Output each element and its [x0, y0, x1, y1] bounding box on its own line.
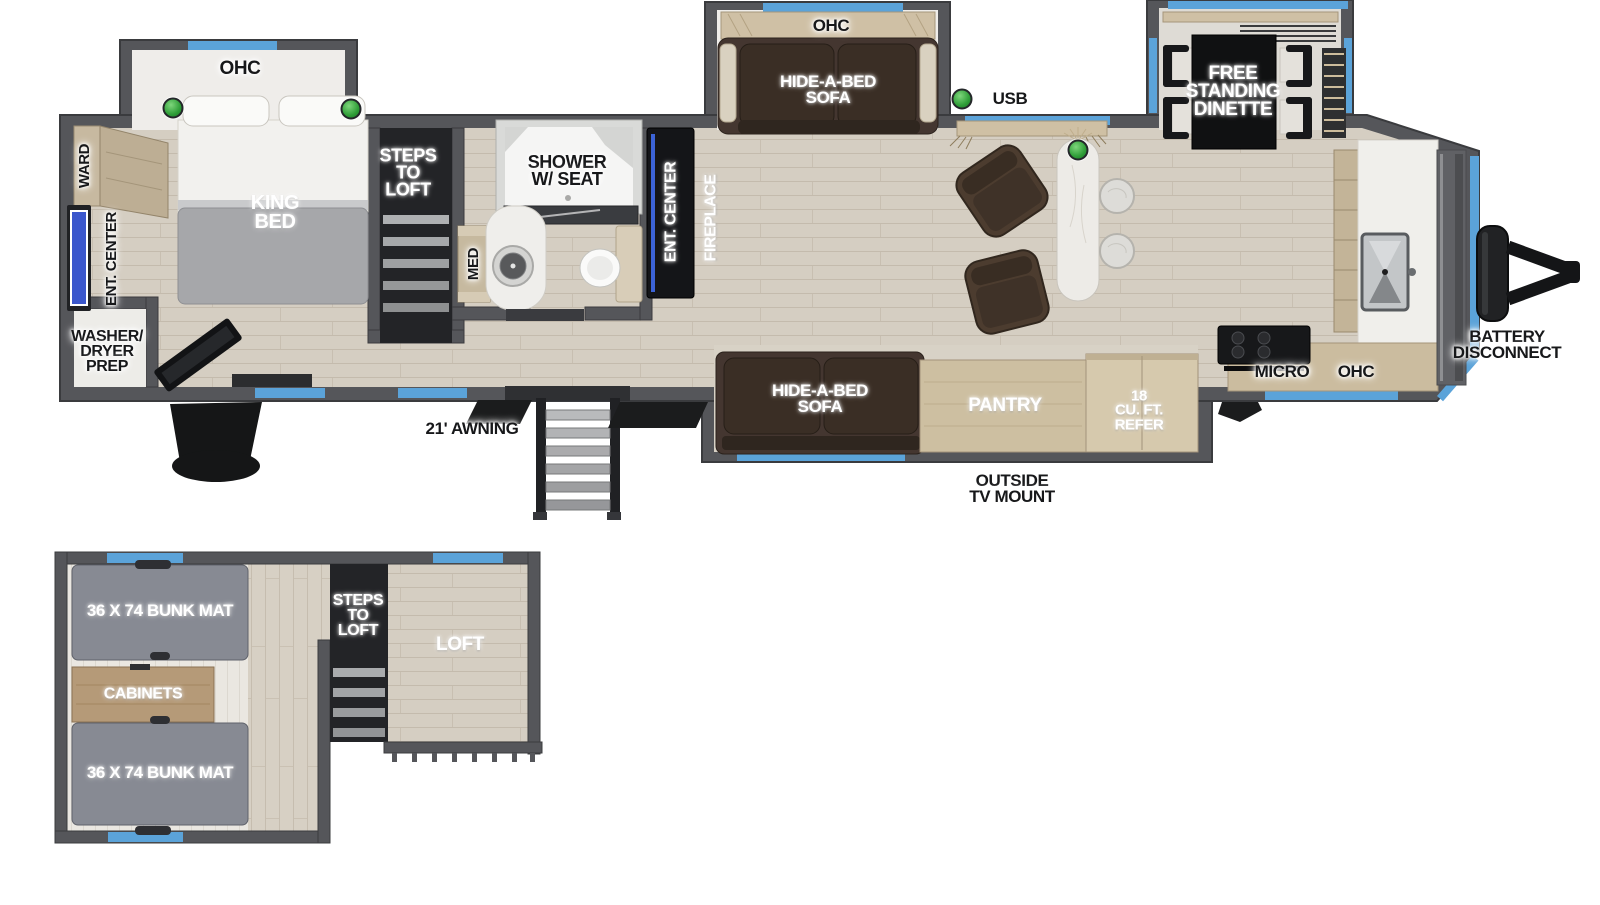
loft-right-wall — [528, 552, 540, 754]
bedroom-slide-window — [188, 41, 277, 50]
propane-battery-cover — [1477, 226, 1508, 321]
awning-arm-front — [1218, 402, 1262, 422]
window-blinds — [1322, 48, 1346, 138]
corridor-right-wall — [318, 640, 330, 843]
hide-a-bed-sofa-top — [718, 38, 938, 134]
bedroom-sliding-door — [232, 374, 312, 387]
kitchen-sink — [1362, 234, 1416, 310]
floorplan-drawing — [0, 0, 1600, 905]
kitchen-bottom-window — [1265, 391, 1398, 400]
washer-dryer-room — [74, 309, 146, 387]
awning-arm-right — [608, 402, 708, 428]
usb-indicator-island — [1068, 140, 1089, 161]
pantry — [920, 360, 1086, 452]
wardrobe — [74, 126, 168, 218]
front-cap-band — [1437, 150, 1466, 385]
pillow-left — [183, 96, 269, 126]
king-bed — [178, 96, 368, 304]
kitchen-cabinets-right — [1334, 150, 1358, 332]
sofa-slide-ohc — [721, 12, 935, 39]
loft-floor — [388, 564, 528, 742]
sofa-slide-window — [763, 3, 903, 12]
hitch-coupler — [1560, 261, 1580, 283]
rear-exterior-step — [170, 402, 262, 482]
awning-arm-left — [466, 400, 532, 424]
usb-indicator-bed-right — [341, 99, 362, 120]
loft-stairs — [330, 564, 388, 742]
loft-bottom-wall — [55, 831, 330, 843]
stairwell-left-wall — [368, 128, 380, 343]
hallway-bottom-window — [398, 388, 467, 398]
stairs-to-loft — [380, 128, 452, 343]
rv-floorplan: OHC KING BED WARD ENT. CENTER WASHER/ DR… — [0, 0, 1600, 905]
cooktop — [1218, 326, 1310, 371]
dinette-table — [1192, 35, 1276, 149]
refrigerator — [1086, 354, 1198, 452]
faucet — [1408, 268, 1416, 276]
bedroom-bottom-window — [255, 388, 325, 398]
bunk-mat-2 — [72, 716, 248, 835]
bedroom-tv — [67, 205, 91, 311]
hitch-assembly — [1477, 226, 1580, 321]
entry-steps — [533, 398, 621, 520]
loft-cabinets — [72, 664, 214, 722]
loft-left-wall — [55, 552, 67, 843]
dinette-side-window-left — [1149, 38, 1157, 113]
usb-indicator-wall — [952, 89, 973, 110]
loft-top-window — [433, 553, 503, 563]
ent-center-fireplace-unit — [647, 128, 694, 298]
bunk-mat-1 — [72, 560, 248, 660]
bathroom-sliding-door — [506, 309, 584, 321]
loft-section — [55, 552, 542, 843]
dinette-slide-window — [1168, 1, 1348, 9]
bathroom-sink — [486, 206, 546, 310]
usb-indicator-bed-left — [163, 98, 184, 119]
main-section — [60, 0, 1580, 520]
loft-railing — [384, 742, 542, 762]
medicine-cabinet — [458, 226, 490, 302]
hide-a-bed-sofa-bottom — [716, 352, 924, 454]
